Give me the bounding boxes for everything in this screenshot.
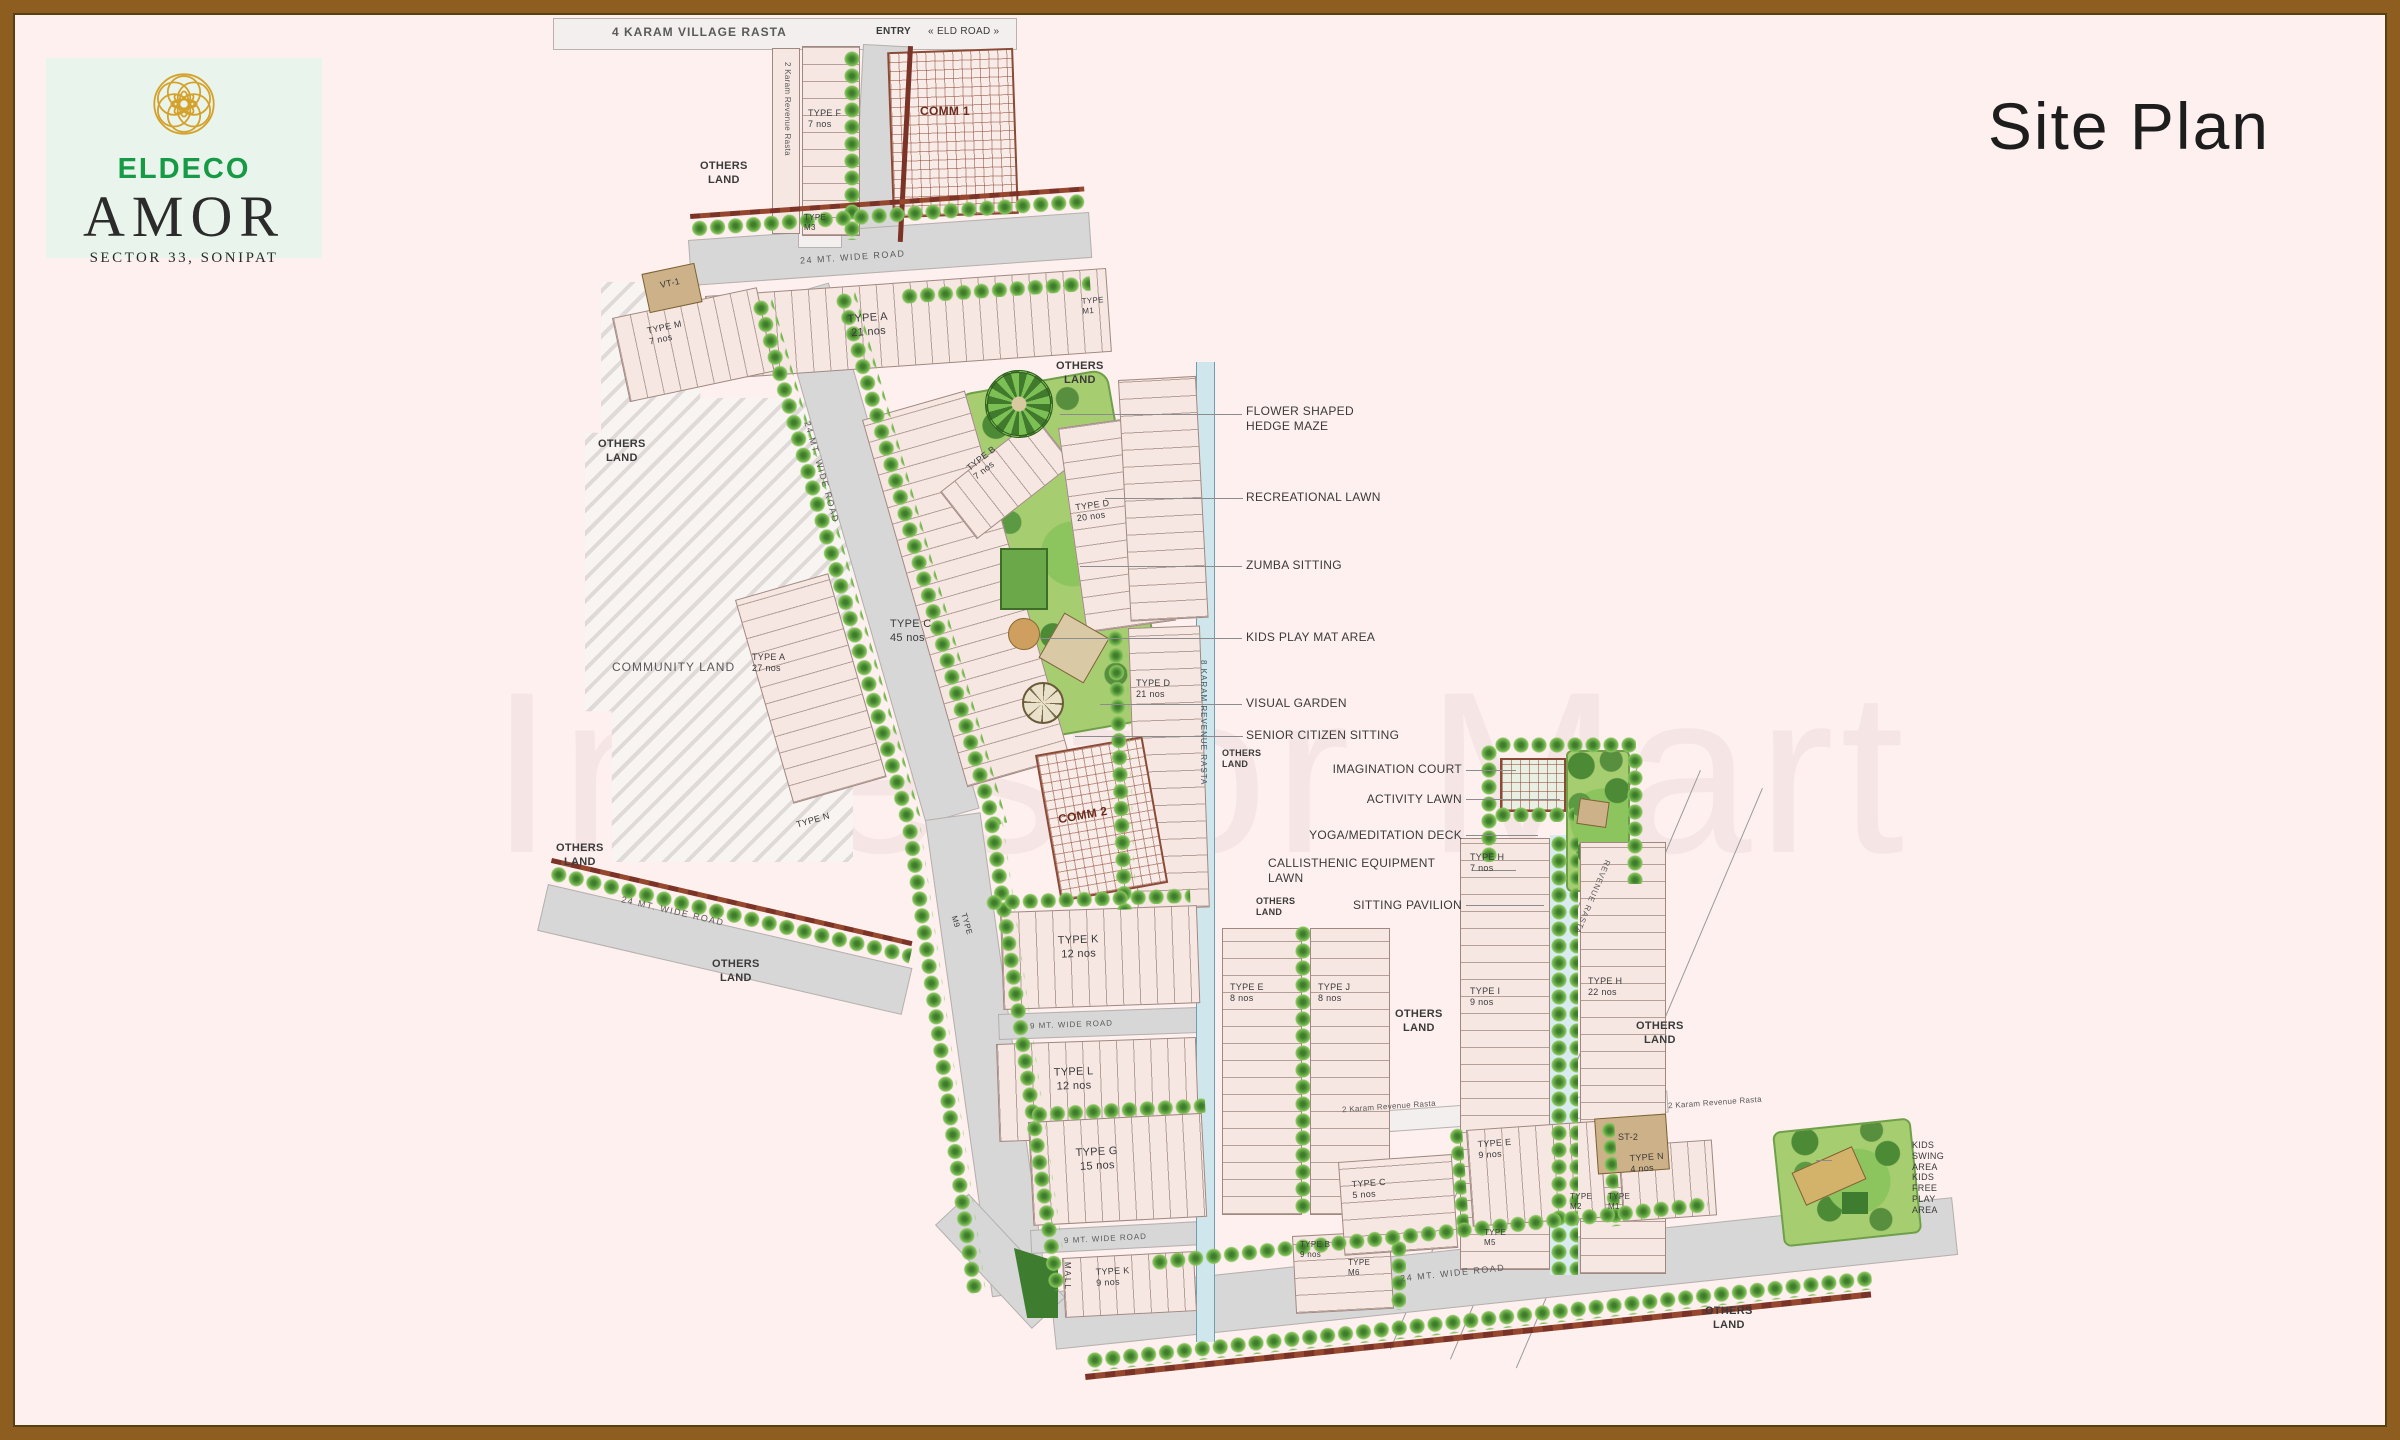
- label-others-land-4: OTHERS LAND: [712, 958, 760, 986]
- leader-kids: [1816, 1160, 1832, 1161]
- brand-logo-card: ELDECO AMOR SECTOR 33, SONIPAT: [46, 58, 322, 258]
- label-mall: MALL: [1062, 1262, 1072, 1291]
- label-others-land-3: OTHERS LAND: [556, 842, 604, 870]
- label-type-h-7: TYPE H 7 nos: [1470, 852, 1504, 875]
- kids-play-mat: [1008, 618, 1040, 650]
- label-others-land-7: OTHERS LAND: [1256, 896, 1295, 919]
- trees-activity-left: [1480, 744, 1498, 862]
- label-others-land-2: OTHERS LAND: [598, 438, 646, 466]
- label-type-a-27: TYPE A 27 nos: [752, 652, 785, 675]
- label-type-m6: TYPE M6: [1348, 1258, 1370, 1278]
- label-type-k-12: TYPE K 12 nos: [1058, 933, 1100, 962]
- label-entry: ENTRY: [876, 26, 911, 39]
- zumba-deck: [1000, 548, 1048, 610]
- label-village-rasta: 4 KARAM VILLAGE RASTA: [612, 25, 787, 40]
- label-visual-garden: VISUAL GARDEN: [1246, 696, 1347, 711]
- plot-type-k-12: [1000, 905, 1200, 1010]
- brand-project: AMOR: [46, 188, 322, 246]
- label-others-land-9: OTHERS LAND: [1705, 1305, 1753, 1333]
- label-drain-channel: 8 KARAM REVENUE RASTA: [1198, 660, 1208, 785]
- trees-activity-inner: [1494, 806, 1574, 822]
- leader-kids-mat: [1040, 638, 1242, 639]
- label-yoga-deck: YOGA/MEDITATION DECK: [1270, 828, 1462, 843]
- label-sitting-pavilion: SITTING PAVILION: [1300, 898, 1462, 913]
- sitting-pavilion-structure: [1022, 682, 1064, 724]
- label-type-l-12: TYPE L 12 nos: [1054, 1065, 1095, 1094]
- leader-flower-maze: [1060, 414, 1242, 415]
- label-type-d-21: TYPE D 21 nos: [1136, 678, 1170, 701]
- flower-hedge-maze: [985, 370, 1053, 438]
- label-type-b-9: TYPE B 9 nos: [1300, 1240, 1330, 1260]
- label-type-m1: TYPE M1: [1608, 1192, 1630, 1212]
- label-type-m3: TYPE M3: [804, 213, 826, 233]
- label-st2: ST-2: [1618, 1132, 1638, 1143]
- kids-play-structure: [1842, 1192, 1868, 1214]
- leader-zumba: [1080, 566, 1242, 567]
- label-imagination-court: IMAGINATION COURT: [1292, 762, 1462, 777]
- label-type-h-22: TYPE H 22 nos: [1588, 976, 1622, 999]
- label-eld-road: « ELD ROAD »: [928, 26, 999, 39]
- label-type-a-21: TYPE A 21 nos: [847, 311, 889, 341]
- label-type-m1-top: TYPE M1: [1081, 295, 1104, 316]
- label-type-k-9: TYPE K 9 nos: [1095, 1265, 1130, 1289]
- leader-senior: [1075, 736, 1243, 737]
- label-type-e-9: TYPE E 9 nos: [1477, 1137, 1512, 1162]
- label-type-j-8: TYPE J 8 nos: [1318, 982, 1350, 1005]
- label-revenue-rasta-right: 2 Karam Revenue Rasta: [1668, 1095, 1762, 1112]
- trees-ej-median: [1294, 925, 1310, 1215]
- label-activity-lawn: ACTIVITY LAWN: [1292, 792, 1462, 807]
- leader-visual-garden: [1100, 704, 1242, 705]
- leader-imagination: [1466, 770, 1516, 771]
- leader-pavilion: [1466, 905, 1544, 906]
- page-title: Site Plan: [1988, 88, 2270, 164]
- label-recreational-lawn: RECREATIONAL LAWN: [1246, 490, 1381, 505]
- label-type-m5: TYPE M5: [1484, 1228, 1506, 1248]
- yoga-meditation-deck: [1576, 798, 1609, 828]
- label-type-g-15: TYPE G 15 nos: [1075, 1145, 1119, 1175]
- imagination-court: [1500, 758, 1566, 812]
- label-kids-play-mat: KIDS PLAY MAT AREA: [1246, 630, 1375, 645]
- leader-activity-lawn: [1466, 799, 1560, 800]
- label-type-n-4: TYPE N 4 nos: [1629, 1151, 1665, 1176]
- label-callisthenic: CALLISTHENIC EQUIPMENT LAWN: [1268, 856, 1435, 886]
- label-type-d-20: TYPE D 20 nos: [1075, 498, 1112, 525]
- label-type-i-9: TYPE I 9 nos: [1470, 986, 1500, 1009]
- label-zumba-sitting: ZUMBA SITTING: [1246, 558, 1342, 573]
- brand-developer: ELDECO: [46, 153, 322, 186]
- plot-type-e-8: [1222, 928, 1302, 1215]
- leader-yoga: [1466, 835, 1538, 836]
- trees-activity-top: [1494, 736, 1636, 754]
- label-others-land-5: OTHERS LAND: [1056, 360, 1104, 388]
- label-others-land-1: OTHERS LAND: [700, 160, 748, 188]
- trees-activity-right: [1626, 752, 1644, 884]
- label-type-c-45: TYPE C 45 nos: [890, 618, 932, 646]
- label-others-land-6: OTHERS LAND: [1222, 748, 1261, 771]
- leader-recreational: [1105, 498, 1243, 499]
- label-others-land-8: OTHERS LAND: [1395, 1008, 1443, 1036]
- label-type-e-8: TYPE E 8 nos: [1230, 982, 1264, 1005]
- label-flower-maze: FLOWER SHAPED HEDGE MAZE: [1246, 404, 1354, 434]
- label-type-f-7: TYPE F 7 nos: [808, 108, 841, 131]
- label-revenue-rasta-vertical: 2 Karam Revenue Rasta: [782, 62, 792, 156]
- label-comm1: COMM 1: [920, 104, 970, 119]
- brand-location: SECTOR 33, SONIPAT: [46, 250, 322, 267]
- flower-mandala-icon: [147, 68, 221, 140]
- label-others-land-10: OTHERS LAND: [1636, 1020, 1684, 1048]
- label-type-m2: TYPE M2: [1570, 1192, 1592, 1212]
- label-type-c-5: TYPE C 5 nos: [1351, 1177, 1387, 1202]
- label-community-land: COMMUNITY LAND: [612, 660, 735, 675]
- label-senior-citizen: SENIOR CITIZEN SITTING: [1246, 728, 1399, 743]
- label-kids-corner: KIDS SWING AREA KIDS FREE PLAY AREA: [1912, 1140, 1944, 1216]
